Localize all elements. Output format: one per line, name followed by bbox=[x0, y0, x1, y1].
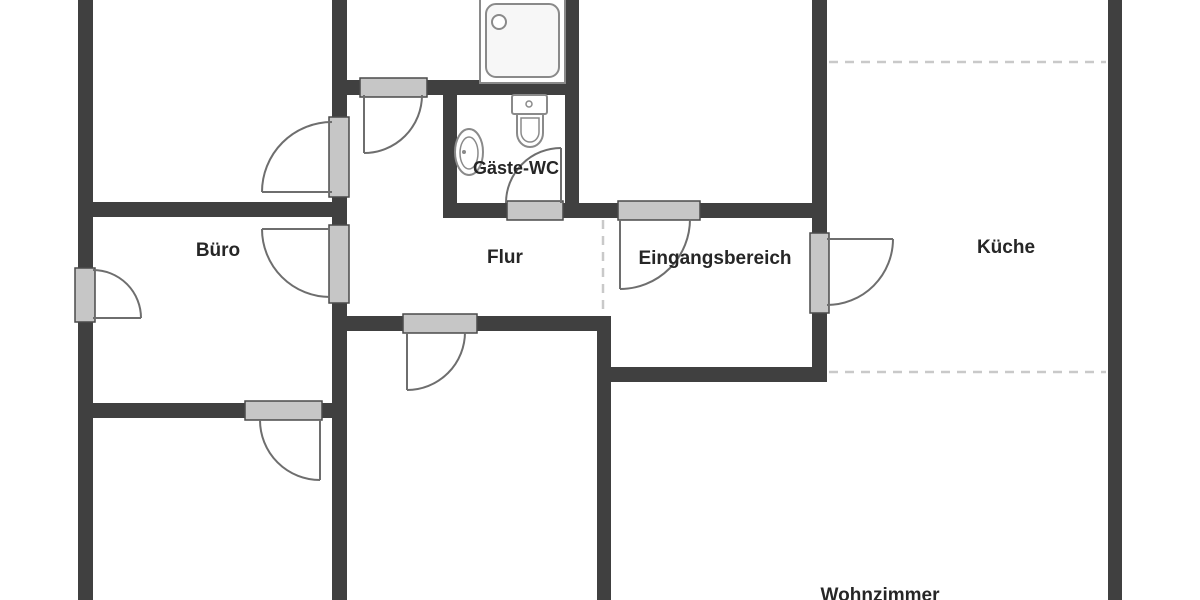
door-jamb bbox=[618, 201, 700, 220]
room-label-gaeste_wc: Gäste-WC bbox=[473, 158, 559, 178]
door-swing-arc bbox=[260, 420, 320, 480]
door-jamb bbox=[360, 78, 427, 97]
wall-segment bbox=[78, 202, 347, 217]
wall-segment bbox=[332, 0, 347, 117]
wall-segment bbox=[611, 367, 827, 382]
room-label-wohnzimmer: Wohnzimmer bbox=[821, 585, 941, 600]
door-jamb bbox=[75, 268, 95, 322]
wall-segment bbox=[477, 316, 611, 331]
door-swings bbox=[93, 95, 893, 480]
room-label-kueche: Küche bbox=[977, 237, 1035, 258]
walls bbox=[78, 0, 1122, 600]
wall-segment bbox=[597, 316, 611, 600]
wall-segment bbox=[347, 80, 360, 95]
wall-segment bbox=[565, 0, 579, 217]
shower-drain bbox=[492, 15, 506, 29]
room-label-flur: Flur bbox=[487, 247, 523, 268]
wall-segment bbox=[322, 403, 347, 418]
room-label-buero: Büro bbox=[196, 240, 240, 261]
floor-plan-drawing: BüroFlurGäste-WCEingangsbereichKücheWohn… bbox=[0, 0, 1200, 600]
toilet-flush-button bbox=[526, 101, 532, 107]
wall-segment bbox=[563, 203, 618, 218]
door-jamb bbox=[329, 117, 349, 197]
door-jamb bbox=[329, 225, 349, 303]
wall-segment bbox=[443, 203, 507, 218]
wall-segment bbox=[812, 313, 827, 375]
wall-segment bbox=[78, 0, 93, 268]
door-jamb bbox=[810, 233, 829, 313]
wall-segment bbox=[700, 203, 812, 218]
door-swing-arc bbox=[93, 270, 141, 318]
door-swing-arc bbox=[407, 332, 465, 390]
door-jamb bbox=[403, 314, 477, 333]
floor-plan-page: BüroFlurGäste-WCEingangsbereichKücheWohn… bbox=[0, 0, 1200, 600]
door-swing-arc bbox=[364, 95, 422, 153]
door-swing-arc bbox=[262, 122, 332, 192]
sink-faucet bbox=[462, 150, 466, 154]
wall-segment bbox=[1108, 0, 1122, 600]
wall-segment bbox=[332, 303, 347, 600]
door-swing-arc bbox=[262, 229, 330, 297]
wall-segment bbox=[347, 316, 403, 331]
door-jamb bbox=[507, 201, 563, 220]
door-swing-arc bbox=[827, 239, 893, 305]
wall-segment bbox=[93, 403, 245, 418]
room-label-eingangsbereich: Eingangsbereich bbox=[638, 248, 791, 269]
door-jamb bbox=[245, 401, 322, 420]
wall-segment bbox=[78, 322, 93, 600]
wall-segment bbox=[812, 0, 827, 233]
